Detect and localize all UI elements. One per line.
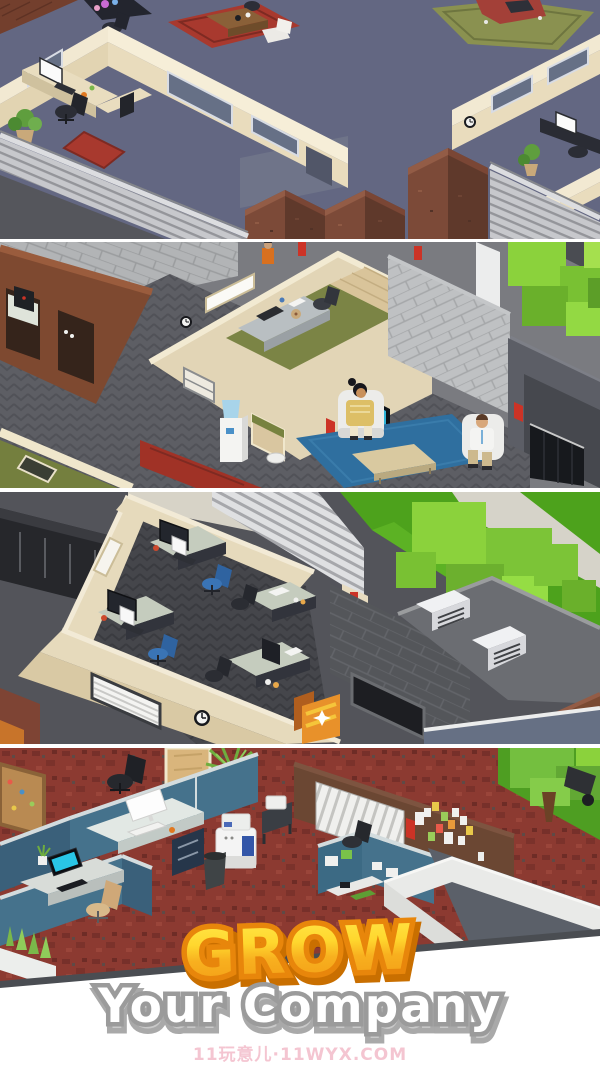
- wall-clock-icon: [464, 116, 476, 128]
- fire-extinguisher-icon: [298, 242, 306, 256]
- watermark-text: 11玩意儿·11WYX.COM: [0, 1040, 600, 1065]
- open-office-illustration: [0, 492, 600, 744]
- fire-extinguisher-icon: [414, 246, 422, 260]
- lounge-illustration: [0, 242, 600, 488]
- panel-cubicles: [0, 748, 600, 992]
- trash-bin: [204, 852, 226, 890]
- fire-extinguisher-icon: [406, 818, 415, 840]
- office-rooms-illustration: [0, 0, 600, 239]
- subheadline-shadow: Your Company: [99, 985, 504, 1040]
- wall-clock-icon: [180, 316, 192, 328]
- cork-board: [0, 764, 44, 836]
- panel-open-office: [0, 492, 600, 744]
- wall-clock-icon: [194, 710, 210, 726]
- panel-lounge: [0, 242, 600, 488]
- cubicles-illustration: [0, 748, 600, 992]
- app-store-screenshot: GROW GROW Your Company Your Company 11玩意…: [0, 0, 600, 1066]
- panel-office-rooms: [0, 0, 600, 239]
